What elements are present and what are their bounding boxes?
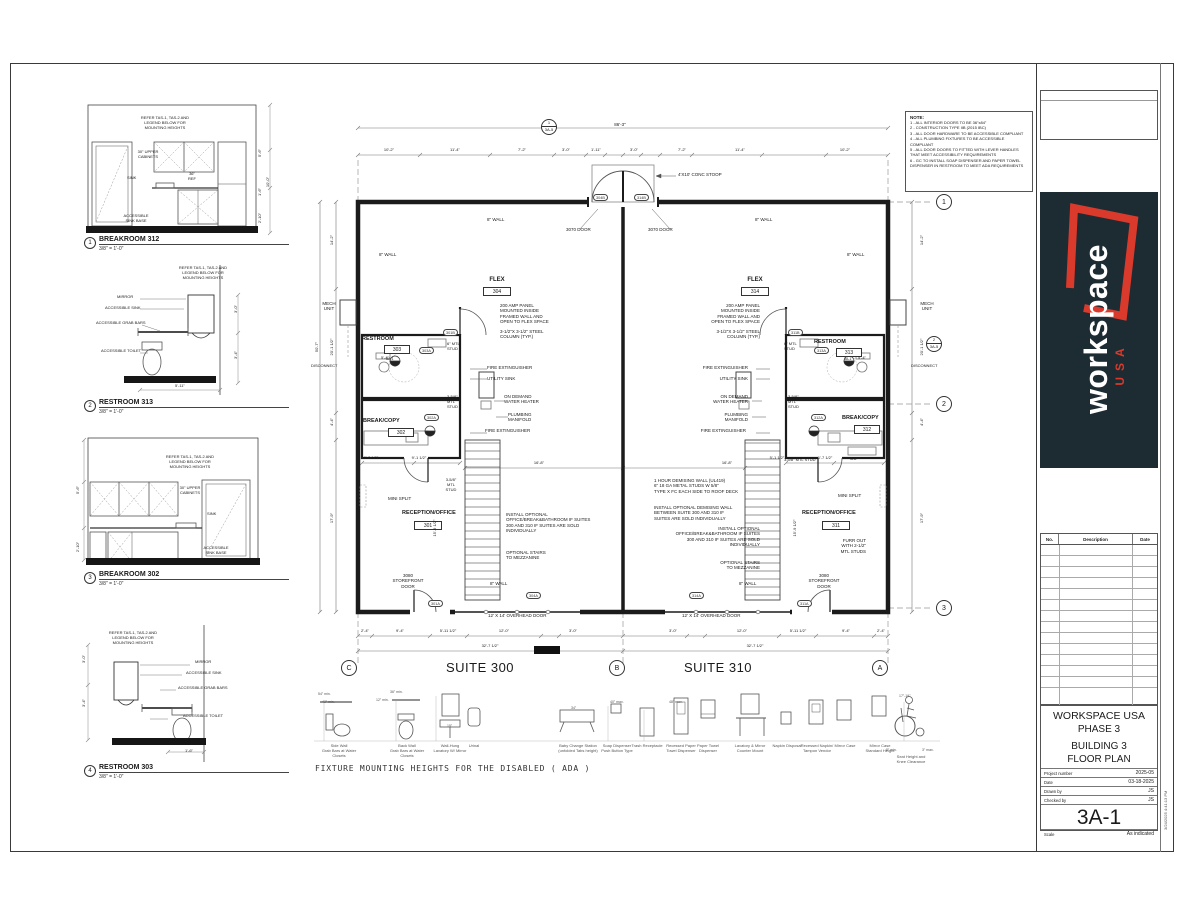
optional-stairs-note-right: OPTIONAL STAIRS TO MEZZANINE: [700, 560, 760, 571]
titleblock-strip-left-line: [1036, 63, 1037, 852]
mtl-stud-358-label-left: 3-5/8" MTL STUD: [447, 395, 458, 409]
mini-split-label-left: MINI SPLIT: [388, 496, 411, 501]
door-tag-302A: 302A: [424, 414, 439, 421]
room-number-302: 302: [388, 428, 414, 437]
consultant-box: [1040, 90, 1158, 140]
rev-col-description: Description: [1059, 534, 1133, 544]
suite-300-title: SUITE 300: [420, 660, 540, 676]
overhead-door-label-right: 12' X 14' OVERHEAD DOOR: [682, 613, 741, 618]
mech-unit-label-left: MECH UNIT: [318, 301, 340, 312]
ada-dim-10: 8" min.: [886, 748, 897, 752]
grid-bubble-A: A: [872, 660, 888, 676]
ada-dim-2: 42" min.: [322, 700, 335, 704]
dim-top-7: 7'-2": [662, 148, 702, 153]
detail2-grab-label: ACCESSIBLE GRAB BARS: [96, 321, 146, 326]
plumbing-manifold-label-right: PLUMBING MANIFOLD: [704, 412, 748, 423]
detail1-dim-1: 5'-6": [258, 138, 263, 168]
utility-sink-label-right: UTILITY SINK: [690, 376, 748, 381]
fire-extinguisher-label-right-1: FIRE EXTINGUISHER: [690, 365, 748, 370]
fire-extinguisher-label-left-2: FIRE EXTINGUISHER: [485, 428, 530, 433]
ada-caption-5: Baby Change Station (unfolded Tabs heigh…: [555, 744, 601, 754]
room-label-flex-304: FLEX: [482, 277, 512, 284]
door-tag-301B: 301B: [443, 329, 458, 336]
room-number-314: 314: [741, 287, 769, 296]
optional-office-note-left: INSTALL OPTIONAL OFFICE/BREAK&BATHROOM I…: [506, 512, 590, 534]
fire-extinguisher-label-right-2: FIRE EXTINGUISHER: [688, 428, 746, 433]
door-tag-314A: 314A: [689, 592, 704, 599]
field-label-drawn-by: Drawn by: [1044, 787, 1062, 795]
door-tag-314B: 314B: [634, 194, 649, 201]
detail2-sink-label: ACCESSIBLE SINK: [105, 306, 141, 311]
dim-bot-7: 12'-0": [724, 629, 760, 634]
dim-left-4: 17'-9": [330, 496, 335, 540]
dim-reception-right-height: 15'-9 1/2": [793, 508, 798, 548]
dim-reception-left-2: 9'-1 1/2": [404, 456, 434, 461]
door-tag-312A: 312A: [811, 414, 826, 421]
room-label-break-312: BREAK/COPY: [842, 415, 879, 422]
detail3-dim-1: 5'-6": [76, 475, 81, 505]
section-marker-top: 1 3A-5: [541, 119, 557, 135]
detail1-dim-3: 1'-6": [258, 181, 263, 203]
dim-left-1: 14'-2": [330, 218, 335, 262]
logo-panel: workspace USA: [1040, 192, 1158, 468]
dim-bot-3: 5'-11 1/2": [430, 629, 466, 634]
optional-stairs-note-left: OPTIONAL STAIRS TO MEZZANINE: [506, 550, 546, 561]
project-phase: PHASE 3: [1041, 724, 1157, 740]
rev-col-no: No.: [1041, 534, 1059, 544]
detail2-scale: 3/8" = 1'-0": [99, 409, 123, 415]
ada-dim-4: 12" min.: [376, 698, 389, 702]
detail3-title: BREAKROOM 302: [99, 571, 289, 580]
room-number-304: 304: [483, 287, 511, 296]
ada-caption-10: Lavatory & Mirror Counter Mount: [730, 744, 770, 754]
section-marker-top-sheet: 3A-5: [542, 126, 556, 133]
detail4-mirror-label: MIRROR: [195, 660, 211, 665]
detail2-number-bubble: 2: [84, 400, 96, 412]
door-tag-311B: 311B: [788, 329, 803, 336]
grid-bubble-C: C: [341, 660, 357, 676]
room-label-reception-301: RECEPTION/OFFICE: [402, 510, 456, 517]
detail1-number-bubble: 1: [84, 237, 96, 249]
room-number-311: 311: [822, 521, 850, 530]
room-number-303: 303: [384, 345, 410, 354]
dim-top-4: 3'-0": [548, 148, 584, 153]
ada-caption-7: Trash Receptacle: [628, 744, 666, 749]
dim-reception-right-2: 6'-7 1/2": [810, 456, 840, 461]
detail3-number-bubble: 3: [84, 572, 96, 584]
detail1-cabinets-label: 30" UPPER CABINETS: [132, 150, 164, 160]
grid-bubble-1: 1: [936, 194, 952, 210]
detail4-refer-note: REFER TAS-1, TAS-2 AND LEGEND BELOW FOR …: [104, 631, 162, 645]
dim-reception-left-height: 15'-9 1/2": [433, 508, 438, 548]
rev-table-divider-2: [1132, 545, 1133, 706]
detail3-refer-note: REFER TAS-1, TAS-2 AND LEGEND BELOW FOR …: [162, 455, 218, 469]
door-3070-label-left: 3070 DOOR: [566, 227, 591, 232]
detail4-grab-label: ACCESSIBLE GRAB BARS: [178, 686, 228, 691]
dim-suite-left-width: 16'-8": [524, 461, 554, 466]
ada-caption-2: Back Wall Grab Bars at Water Closets: [384, 744, 430, 758]
detail4-toilet-label: ACCESSIBLE TOILET: [183, 714, 223, 719]
room-label-reception-311: RECEPTION/OFFICE: [802, 510, 856, 517]
dim-bot-5: 3'-0": [555, 629, 591, 634]
plot-timestamp: 3/24/2025 4:41:13 PM: [1163, 766, 1168, 830]
door-tag-303A: 303A: [419, 347, 434, 354]
detail4-dim-2: 3'-4": [82, 690, 87, 716]
titleblock-strip-inner-line: [1160, 63, 1161, 852]
ada-dim-6: 34": [571, 706, 576, 710]
fire-extinguisher-label-left-1: FIRE EXTINGUISHER: [487, 365, 532, 370]
ada-caption-4: Urinal: [462, 744, 486, 749]
dim-left-2: 20'-1 1/2": [330, 322, 335, 372]
sheet-number: 3A-1: [1041, 804, 1157, 829]
ada-caption-13: Mirror Case: [828, 744, 862, 749]
detail3-sink-label: SINK: [207, 512, 216, 517]
grid-bubble-2: 2: [936, 396, 952, 412]
scale-label: Scale: [1044, 830, 1054, 838]
furr-out-note: FURR OUT WITH 2-1/2" MTL STUDS: [818, 538, 866, 554]
steel-column-note-right: 3-1/2"X 3-1/2" STEEL COLUMN (TYP.): [698, 329, 760, 340]
dim-reception-left-1: 8'-7 1/2": [356, 456, 386, 461]
optional-office-note-right: INSTALL OPTIONAL OFFICE/BREAK&BATHROOM I…: [674, 526, 760, 548]
amp-panel-note-left: 200 AMP PANEL MOUNTED INSIDE FRAMED WALL…: [500, 303, 549, 325]
dim-restroom-right: 5'-4": [858, 356, 866, 361]
mtl-stud-6-label-right: 6" MTL STUD: [784, 342, 797, 352]
room-label-restroom-313: RESTROOM: [814, 339, 846, 346]
detail4-sink-label: ACCESSIBLE SINK: [186, 671, 222, 676]
detail3-dim-2: 2'-10": [76, 534, 81, 560]
room-number-312: 312: [854, 425, 880, 434]
ada-dim-7: 15": [447, 724, 452, 728]
storefront-door-label-left: 3080 STOREFRONT DOOR: [386, 573, 430, 589]
marker-3a1-right: 3A-1: [844, 357, 851, 361]
section-marker-right-sheet: 3A-5: [927, 343, 941, 350]
detail2-dim-2: 3'-4": [234, 342, 239, 368]
drawing-sheet: NOTE: 1 - ALL INTERIOR DOORS TO BE 36"x8…: [0, 0, 1184, 915]
dim-overall-top: 86'-3": [590, 122, 650, 127]
mtl-stud-358-label-reception-left: 3-5/8" MTL STUD: [438, 478, 464, 492]
optional-demising-note: INSTALL OPTIONAL DEMISING WALL BETWEEN S…: [654, 505, 732, 521]
ada-dim-11: 3" max.: [922, 748, 934, 752]
door-tag-313A: 313A: [814, 347, 829, 354]
plumbing-manifold-label-left: PLUMBING MANIFOLD: [508, 412, 532, 423]
dim-bot-6: 3'-0": [655, 629, 691, 634]
detail3-cabinets-label: 30" UPPER CABINETS: [174, 486, 206, 496]
door-tag-304B: 304B: [593, 194, 608, 201]
wall8-label-6: 8" WALL: [739, 581, 756, 586]
detail2-dim-3: 5'-11": [165, 384, 195, 389]
wall8-label-4: 8" WALL: [755, 217, 772, 222]
sheet-title: BUILDING 3 FLOOR PLAN: [1041, 740, 1157, 768]
room-number-301: 301: [414, 521, 442, 530]
dim-top-9: 10'-2": [825, 148, 865, 153]
logo-wordmark: workspace: [1078, 200, 1115, 458]
detail3-scale: 3/8" = 1'-0": [99, 581, 123, 587]
detail2-mirror-label: MIRROR: [117, 295, 133, 300]
detail2-dim-1: 3'-0": [234, 296, 239, 322]
detail2-toilet-label: ACCESSIBLE TOILET: [101, 349, 141, 354]
revision-table: No. Description Date: [1040, 533, 1158, 705]
ada-dim-5: 40" max.: [610, 700, 624, 704]
dim-bot-1: 2'-4": [347, 629, 383, 634]
wall8-label-5: 8" WALL: [490, 581, 507, 586]
ada-dim-3: 36" min.: [390, 690, 403, 694]
conc-stoop-label: 4'X10' CONC STOOP: [678, 172, 722, 177]
field-label-date: Date: [1044, 778, 1053, 786]
ada-caption-1: Side Wall Grab Bars at Water Closets: [317, 744, 361, 758]
company-name: WORKSPACE USA: [1041, 706, 1157, 724]
scale-value: As indicated: [1127, 830, 1154, 838]
room-label-break-302: BREAK/COPY: [363, 418, 400, 425]
detail1-scale: 3/8" = 1'-0": [99, 246, 123, 252]
dim-top-1: 10'-2": [369, 148, 409, 153]
ada-dim-9: 17"-19": [899, 694, 910, 698]
mech-unit-label-right: MECH UNIT: [916, 301, 938, 312]
water-heater-label-right: ON DEMAND WATER HEATER: [700, 394, 748, 405]
detail2-refer-note: REFER TAS-1, TAS-2 AND LEGEND BELOW FOR …: [173, 266, 233, 280]
detail4-title: RESTROOM 303: [99, 764, 289, 773]
ada-caption-15: Seat Height and Knee Clearance: [893, 755, 929, 765]
detail1-ref-label: 36" REF: [184, 172, 200, 182]
field-label-project-number: Project number: [1044, 769, 1072, 777]
detail4-dim-1: 3'-0": [82, 646, 87, 672]
ada-strip-title: FIXTURE MOUNTING HEIGHTS FOR THE DISABLE…: [315, 764, 590, 774]
dim-right-3: 4'-4": [920, 404, 925, 440]
dim-bot-10: 2'-4": [863, 629, 899, 634]
detail1-title: BREAKROOM 312: [99, 236, 289, 245]
overhead-door-label-left: 12' X 14' OVERHEAD DOOR: [488, 613, 547, 618]
dim-top-3: 7'-2": [502, 148, 542, 153]
ada-dim-8: 48" max.: [669, 700, 683, 704]
detail1-dim-4: 2'-10": [258, 206, 263, 230]
detail2-title: RESTROOM 313: [99, 399, 289, 408]
field-label-checked-by: Checked by: [1044, 796, 1066, 804]
demising-wall-note: 1 HOUR DEMISING WALL (UL419) 6" 18 GA ME…: [654, 478, 738, 494]
mtl-stud-6-label-left: 6" MTL STUD: [447, 342, 460, 352]
detail1-refer-note: REFER TAS-1, TAS-2 AND LEGEND BELOW FOR …: [134, 116, 196, 130]
wall8-label-1: 8" WALL: [379, 252, 396, 257]
field-value-drawn-by: JS: [1148, 787, 1154, 795]
rev-col-date: Date: [1133, 534, 1157, 544]
dim-total-right: 32'-7 1/2": [725, 644, 785, 649]
dim-right-4: 17'-9": [920, 496, 925, 540]
dim-right-1: 14'-2": [920, 218, 925, 262]
detail4-scale: 3/8" = 1'-0": [99, 774, 123, 780]
dim-left-overall: 50'-7": [315, 322, 320, 372]
ada-dim-1: 54" min.: [318, 692, 331, 696]
dim-bot-2: 9'-4": [382, 629, 418, 634]
steel-column-note-left: 3-1/2"X 3-1/2" STEEL COLUMN (TYP.): [500, 329, 543, 340]
detail3-sink-base-label: ACCESSIBLE SINK BASE: [198, 546, 234, 556]
titleblock-info: WORKSPACE USA PHASE 3 BUILDING 3 FLOOR P…: [1040, 705, 1158, 831]
field-value-date: 03-18-2025: [1128, 778, 1154, 786]
door-3070-label-right: 3070 DOOR: [648, 227, 673, 232]
dim-top-8: 11'-4": [720, 148, 760, 153]
mini-split-label-right: MINI SPLIT: [838, 493, 861, 498]
field-value-project-number: 2025-05: [1136, 769, 1154, 777]
mtl-stud-358-label-right: 3-5/8" MTL STUD: [788, 395, 799, 409]
rev-table-divider-1: [1059, 545, 1060, 706]
storefront-door-label-right: 3080 STOREFRONT DOOR: [802, 573, 846, 589]
door-tag-304A: 304A: [526, 592, 541, 599]
detail1-dim-2: 10'-0": [266, 164, 271, 200]
dim-restroom-left: 5'-4": [381, 356, 389, 361]
wall8-label-2: 8" WALL: [847, 252, 864, 257]
dim-top-6: 3'-0": [618, 148, 650, 153]
water-heater-label-left: ON DEMAND WATER HEATER: [504, 394, 539, 405]
dim-left-3: 4'-4": [330, 404, 335, 440]
dim-suite-right-width: 16'-8": [712, 461, 742, 466]
amp-panel-note-right: 200 AMP PANEL MOUNTED INSIDE FRAMED WALL…: [698, 303, 760, 325]
field-value-checked-by: JS: [1148, 796, 1154, 804]
suite-310-title: SUITE 310: [658, 660, 778, 676]
uc-label: UC: [850, 456, 857, 461]
section-marker-right: 2 3A-5: [926, 336, 942, 352]
door-tag-311A: 311A: [797, 600, 812, 607]
detail1-sink-label: SINK: [127, 176, 136, 181]
dim-top-2: 11'-4": [435, 148, 475, 153]
grid-bubble-3: 3: [936, 600, 952, 616]
room-label-flex-314: FLEX: [740, 277, 770, 284]
room-label-restroom-303: RESTROOM: [362, 336, 394, 343]
ada-caption-9: Paper Towel Dispenser: [691, 744, 725, 754]
dim-bot-4: 12'-0": [486, 629, 522, 634]
dim-bot-9: 9'-4": [828, 629, 864, 634]
detail4-dim-3: 1'-6": [176, 749, 202, 754]
dim-total-left: 32'-7 1/2": [460, 644, 520, 649]
dim-reception-right-1: 5'-1 1/2": [762, 456, 792, 461]
dim-right-2: 20'-1 1/2": [920, 322, 925, 372]
floor-plan-drawing: [300, 95, 970, 695]
logo-usa-label: USA: [1113, 324, 1127, 404]
dim-bot-8: 5'-11 1/2": [780, 629, 816, 634]
utility-sink-label-left: UTILITY SINK: [487, 376, 515, 381]
detail1-sink-base-label: ACCESSIBLE SINK BASE: [118, 214, 154, 224]
door-tag-301A: 301A: [428, 600, 443, 607]
dim-top-5: 1'-11": [580, 148, 612, 153]
wall8-label-3: 8" WALL: [487, 217, 504, 222]
detail4-number-bubble: 4: [84, 765, 96, 777]
grid-bubble-B: B: [609, 660, 625, 676]
